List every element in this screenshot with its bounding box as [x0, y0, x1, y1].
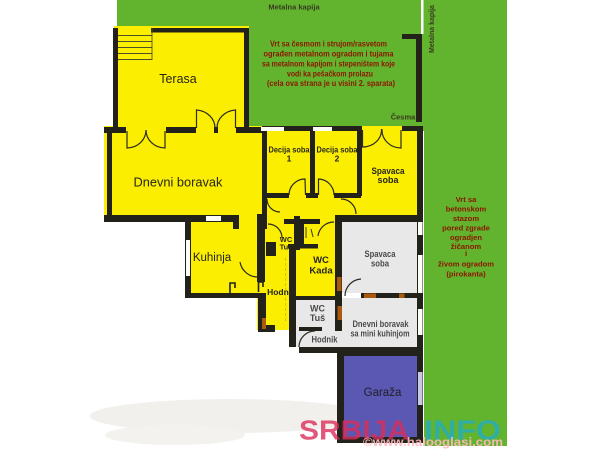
svg-text:©www.halooglasi.com: ©www.halooglasi.com: [363, 435, 503, 449]
svg-text:(cela ova strana je u visini 2: (cela ova strana je u visini 2. sparata): [267, 79, 395, 88]
svg-text:Metalna kapija: Metalna kapija: [429, 5, 436, 53]
svg-text:vodi ka pešačkom prolazu: vodi ka pešačkom prolazu: [287, 70, 373, 79]
svg-text:betonskom: betonskom: [446, 205, 487, 214]
svg-text:stazom: stazom: [453, 214, 479, 223]
svg-text:sa mini kuhinjom: sa mini kuhinjom: [351, 329, 410, 339]
svg-text:Terasa: Terasa: [159, 72, 197, 86]
svg-text:Hodnik: Hodnik: [312, 335, 339, 346]
svg-text:Garaža: Garaža: [364, 387, 402, 399]
svg-text:soba: soba: [377, 175, 399, 185]
svg-text:Kuhinja: Kuhinja: [193, 252, 232, 264]
svg-text:Vrt sa: Vrt sa: [456, 195, 477, 204]
svg-text:Tuš: Tuš: [310, 313, 325, 323]
svg-text:Kada: Kada: [309, 266, 333, 277]
svg-text:ograđen metalnom ogradom i tuj: ograđen metalnom ogradom i tujama: [264, 50, 395, 59]
svg-text:Hodnik: Hodnik: [267, 287, 296, 297]
svg-text:i: i: [465, 249, 467, 258]
svg-text:Česma: Česma: [391, 113, 416, 122]
svg-text:Dnevni boravak: Dnevni boravak: [134, 175, 224, 190]
svg-text:WC: WC: [313, 255, 329, 266]
svg-text:Vrt sa česmom i strujom/rasvet: Vrt sa česmom i strujom/rasvetom: [270, 40, 387, 49]
svg-text:Metalna kapija: Metalna kapija: [268, 3, 320, 12]
svg-text:WC: WC: [310, 304, 325, 314]
svg-text:(pirokanta): (pirokanta): [446, 270, 486, 279]
svg-text:ogradjen: ogradjen: [450, 233, 482, 242]
svg-text:2: 2: [335, 154, 340, 164]
svg-text:Spavaca: Spavaca: [365, 249, 397, 259]
svg-text:soba: soba: [371, 259, 390, 269]
svg-text:1: 1: [287, 154, 292, 164]
svg-text:pored zgrade: pored zgrade: [442, 224, 490, 233]
svg-text:živom ogradom: živom ogradom: [438, 260, 494, 269]
svg-text:sa metalnom kapijom i stepeniš: sa metalnom kapijom i stepeništem koje: [262, 60, 395, 69]
svg-text:Dnevni boravak: Dnevni boravak: [353, 319, 410, 329]
svg-text:Tuš: Tuš: [280, 243, 293, 252]
